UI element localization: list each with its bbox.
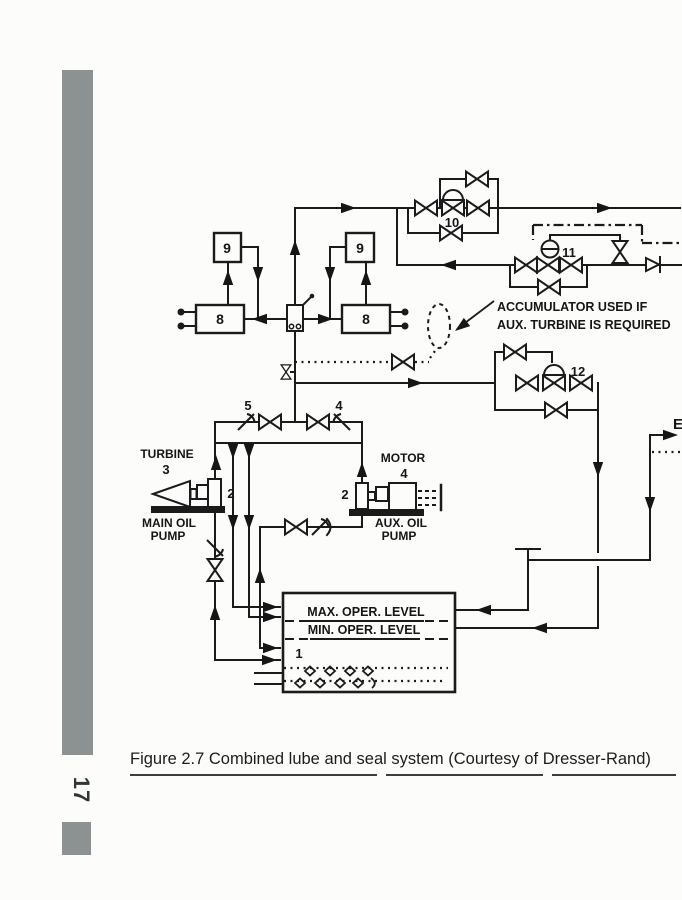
cooler-port-dot — [402, 309, 409, 316]
figure-caption: Figure 2.7 Combined lube and seal system… — [130, 750, 682, 769]
flow-arrows — [210, 203, 678, 665]
filter-left-label: 9 — [223, 240, 231, 256]
vertical-valve-icon — [208, 559, 223, 581]
turbine-item-number: 3 — [162, 462, 169, 477]
valve-11-label: 11 — [562, 245, 576, 260]
accumulator-note-line1: ACCUMULATOR USED IF — [497, 300, 648, 314]
tank-item-number: 1 — [295, 646, 302, 661]
motor-power-leads — [418, 491, 439, 505]
accumulator-note-line2: AUX. TURBINE IS REQUIRED — [497, 318, 671, 332]
cooler-left-label: 8 — [216, 311, 224, 327]
main-pump-label-2: PUMP — [151, 529, 186, 543]
relief-valve-icon — [281, 365, 291, 379]
cooler-right-label: 8 — [362, 311, 370, 327]
note-leader-line — [457, 301, 494, 329]
caption-rule — [552, 774, 676, 776]
bypass-valve-icon — [545, 403, 567, 418]
valve-10-label: 10 — [445, 215, 459, 230]
gate-valve-icon — [515, 258, 537, 273]
aux-pump-item-number: 2 — [341, 487, 348, 502]
vertical-valve-icon — [613, 241, 628, 263]
main-pump-item-number: 2 — [227, 486, 234, 501]
heater-diamonds — [295, 667, 375, 689]
aux-pump-label-1: AUX. OIL — [375, 516, 427, 530]
accumulator-line-valve-icon — [392, 355, 414, 370]
filter-right-label: 9 — [356, 240, 364, 256]
gate-valve-icon — [467, 201, 489, 216]
accumulator-symbol — [428, 304, 450, 348]
bypass-valve-icon — [466, 172, 488, 187]
aux-pump-icon — [356, 483, 368, 509]
caption-rule — [130, 774, 377, 776]
gate-valve-icon — [285, 520, 307, 535]
motor-item-number: 4 — [400, 466, 408, 481]
gate-valve-icon — [259, 415, 281, 430]
edge-connection-label: E — [673, 416, 682, 433]
valve-4-label: 4 — [335, 398, 343, 413]
check-valve-icon — [646, 258, 659, 271]
motor-icon — [389, 483, 416, 510]
turbine-label: TURBINE — [140, 447, 193, 461]
aux-pump-label-2: PUMP — [382, 529, 417, 543]
valve-5-label: 5 — [244, 398, 251, 413]
control-valve-icon — [543, 376, 565, 391]
transfer-valve-handle — [310, 294, 315, 299]
main-oil-pump-assembly — [152, 479, 224, 512]
min-level-label: MIN. OPER. LEVEL — [308, 623, 421, 637]
gate-valve-icon — [516, 376, 538, 391]
cooler-port-dot — [402, 323, 409, 330]
caption-rule — [386, 774, 543, 776]
valve-actuator-dome-icon — [544, 365, 564, 375]
gate-valve-icon — [307, 415, 329, 430]
cooler-port-dot — [178, 309, 185, 316]
gate-valve-icon — [415, 201, 437, 216]
piping-lines — [185, 179, 682, 684]
book-page: 17 — [0, 0, 682, 900]
regulator-valve-icon — [537, 258, 559, 273]
turbine-icon — [153, 481, 190, 507]
max-level-label: MAX. OPER. LEVEL — [307, 605, 425, 619]
bypass-valve-icon — [538, 280, 560, 295]
main-pump-label-1: MAIN OIL — [142, 516, 196, 530]
control-valve-icon — [442, 201, 464, 216]
bypass-valve-icon — [504, 345, 526, 360]
aux-oil-pump-assembly — [350, 483, 423, 515]
valve-12-label: 12 — [571, 364, 585, 379]
valve-actuator-dome-icon — [443, 190, 463, 200]
main-pump-icon — [208, 479, 221, 507]
motor-label: MOTOR — [381, 451, 426, 465]
cooler-port-dot — [178, 323, 185, 330]
